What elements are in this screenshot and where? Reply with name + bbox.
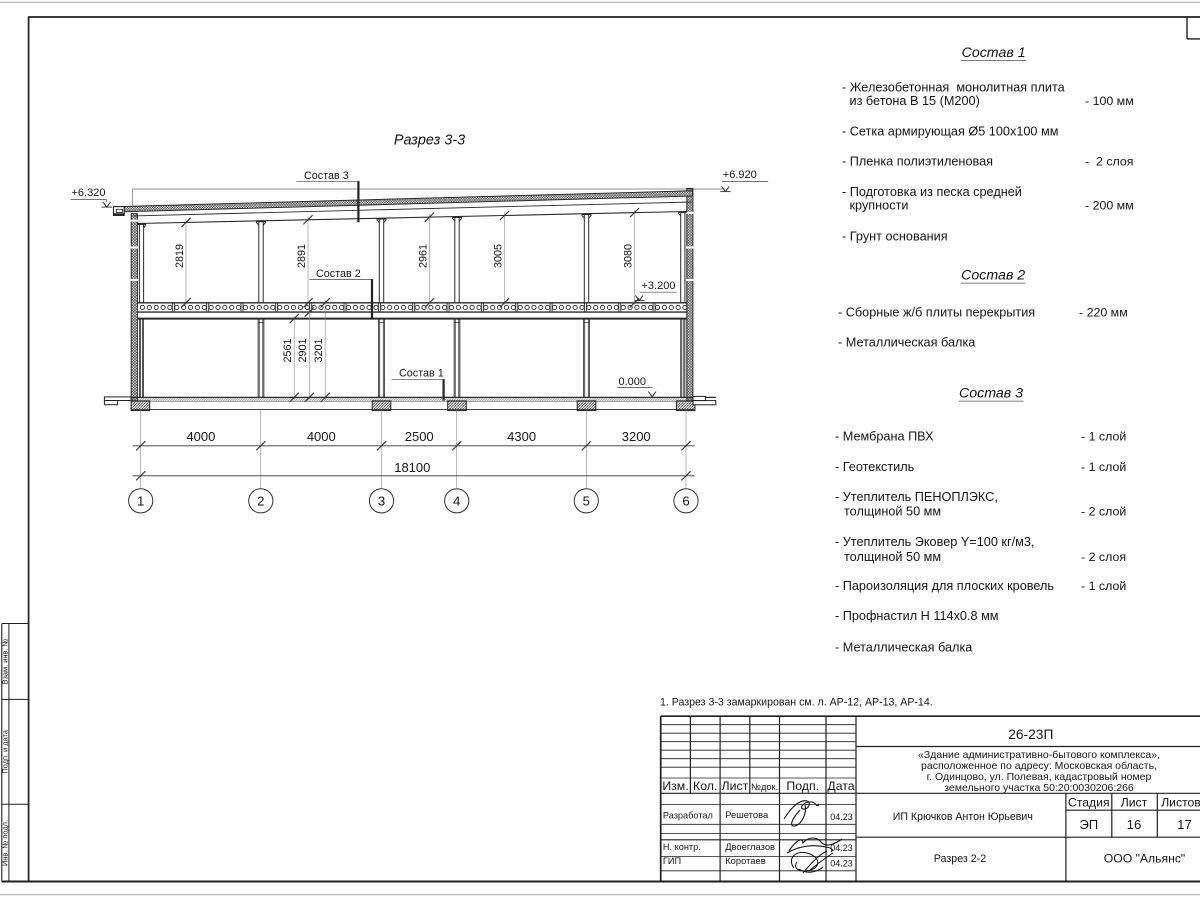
- svg-text:04.23: 04.23: [830, 859, 853, 869]
- svg-text:- 100 мм: - 100 мм: [1085, 94, 1134, 108]
- svg-text:ЭП: ЭП: [1079, 817, 1098, 832]
- svg-text:- Подготовка из песка средней: - Подготовка из песка средней: [842, 185, 1022, 199]
- svg-text:6: 6: [682, 493, 689, 508]
- svg-text:Коротаев: Коротаев: [725, 855, 766, 866]
- svg-text:2819: 2819: [174, 244, 186, 268]
- svg-text:- Сборные ж/б плиты перекрытия: - Сборные ж/б плиты перекрытия: [838, 305, 1035, 319]
- svg-text:Разрез 3-3: Разрез 3-3: [394, 133, 465, 149]
- svg-text:Состав 2: Состав 2: [316, 268, 361, 280]
- svg-text:1: 1: [137, 493, 144, 508]
- svg-text:Состав 3: Состав 3: [304, 170, 349, 182]
- svg-text:- Железобетонная монолитная п: - Железобетонная монолитная плита: [842, 81, 1066, 95]
- svg-text:- Мембрана ПВХ: - Мембрана ПВХ: [835, 430, 934, 444]
- svg-text:Состав 3: Состав 3: [959, 386, 1023, 402]
- svg-text:Подп.: Подп.: [786, 779, 819, 793]
- svg-text:Состав 2: Состав 2: [961, 268, 1025, 284]
- svg-text:4000: 4000: [186, 429, 215, 444]
- svg-text:Инв. № подл.: Инв. № подл.: [0, 820, 9, 866]
- svg-text:Разрез 2-2: Разрез 2-2: [934, 853, 987, 865]
- svg-text:3200: 3200: [622, 429, 651, 444]
- svg-text:3005: 3005: [492, 244, 504, 268]
- svg-text:- Геотекстиль: - Геотекстиль: [835, 460, 915, 474]
- svg-text:крупности: крупности: [850, 199, 909, 213]
- svg-text:Лист: Лист: [1121, 796, 1148, 810]
- svg-text:2561: 2561: [282, 338, 294, 362]
- svg-text:Решетова: Решетова: [725, 809, 769, 820]
- svg-text:04.23: 04.23: [830, 812, 853, 822]
- svg-text:земельного участка 50:20:00302: земельного участка 50:20:0030206:266: [944, 782, 1134, 794]
- svg-text:из бетона В 15 (М200): из бетона В 15 (М200): [850, 94, 980, 108]
- svg-text:2961: 2961: [417, 244, 429, 268]
- svg-text:16: 16: [1127, 817, 1142, 832]
- svg-text:4: 4: [453, 493, 460, 508]
- svg-text:2: 2: [257, 493, 264, 508]
- svg-text:+6.920: +6.920: [723, 169, 757, 181]
- svg-text:- 2 слой: - 2 слой: [1081, 505, 1126, 519]
- svg-text:- Пароизоляция для плоских кро: - Пароизоляция для плоских кровель: [835, 579, 1054, 593]
- svg-text:4300: 4300: [507, 429, 536, 444]
- svg-text:Дата: Дата: [827, 779, 854, 793]
- svg-text:- 1 слой: - 1 слой: [1081, 460, 1126, 474]
- svg-text:Стадия: Стадия: [1068, 796, 1110, 810]
- svg-text:+6.320: +6.320: [72, 187, 106, 199]
- svg-text:ИП Крючков Антон Юрьевич: ИП Крючков Антон Юрьевич: [893, 811, 1033, 823]
- svg-text:0.000: 0.000: [619, 376, 647, 388]
- svg-text:- Металлическая балка: - Металлическая балка: [838, 335, 976, 349]
- svg-text:Разработал: Разработал: [663, 811, 713, 821]
- svg-text:17: 17: [1177, 817, 1192, 832]
- svg-text:4000: 4000: [307, 429, 336, 444]
- svg-text:- 220 мм: - 220 мм: [1079, 305, 1128, 319]
- svg-text:толщиной 50 мм: толщиной 50 мм: [844, 550, 941, 564]
- svg-text:1. Разрез 3-3 замаркирован см.: 1. Разрез 3-3 замаркирован см. л. АР-12,…: [660, 696, 933, 708]
- svg-text:+3.200: +3.200: [642, 280, 676, 292]
- svg-text:- 2 слоя: - 2 слоя: [1085, 155, 1134, 169]
- svg-text:- Пленка полиэтиленовая: - Пленка полиэтиленовая: [842, 155, 993, 169]
- svg-text:- 2 слоя: - 2 слоя: [1081, 550, 1126, 564]
- svg-text:Н. контр.: Н. контр.: [663, 842, 701, 852]
- svg-text:Взам. инв. №: Взам. инв. №: [0, 639, 9, 685]
- svg-text:- Утеплитель ПЕНОПЛЭКС,: - Утеплитель ПЕНОПЛЭКС,: [835, 490, 998, 504]
- svg-text:2891: 2891: [296, 244, 308, 268]
- svg-text:3080: 3080: [622, 244, 634, 268]
- svg-text:- Утеплитель Эковер Y=100 кг/м: - Утеплитель Эковер Y=100 кг/м3,: [835, 535, 1034, 549]
- svg-text:Двоеглазов: Двоеглазов: [725, 841, 775, 852]
- svg-text:Состав 1: Состав 1: [399, 367, 444, 379]
- svg-text:Кол.: Кол.: [693, 779, 717, 793]
- svg-text:Состав 1: Состав 1: [962, 45, 1026, 61]
- svg-text:2901: 2901: [297, 338, 309, 362]
- svg-text:- 1 слой: - 1 слой: [1081, 579, 1126, 593]
- svg-text:- 1 слой: - 1 слой: [1081, 430, 1126, 444]
- svg-text:- Металлическая балка: - Металлическая балка: [835, 640, 973, 654]
- svg-text:- Грунт основания: - Грунт основания: [842, 229, 948, 243]
- svg-text:ГИП: ГИП: [663, 856, 681, 866]
- svg-text:Лист: Лист: [722, 779, 749, 793]
- svg-text:Подп. и дата: Подп. и дата: [0, 729, 9, 773]
- svg-text:- 200 мм: - 200 мм: [1085, 199, 1134, 213]
- svg-text:18100: 18100: [394, 460, 430, 475]
- svg-text:5: 5: [583, 493, 590, 508]
- svg-text:2500: 2500: [405, 429, 434, 444]
- svg-text:ООО "Альянс": ООО "Альянс": [1104, 851, 1186, 865]
- svg-text:Изм.: Изм.: [662, 779, 688, 793]
- svg-text:- Профнастил Н 114х0.8 мм: - Профнастил Н 114х0.8 мм: [835, 609, 999, 623]
- svg-text:04.23: 04.23: [830, 843, 853, 853]
- svg-text:26-23П: 26-23П: [1008, 727, 1053, 742]
- svg-text:№док.: №док.: [751, 782, 778, 792]
- svg-text:Листов: Листов: [1161, 796, 1200, 810]
- svg-text:толщиной 50 мм: толщиной 50 мм: [844, 505, 941, 519]
- svg-text:- Сетка армирующая Ø5 100х100: - Сетка армирующая Ø5 100х100 мм: [842, 125, 1058, 139]
- svg-text:3201: 3201: [313, 338, 325, 362]
- svg-text:3: 3: [378, 493, 385, 508]
